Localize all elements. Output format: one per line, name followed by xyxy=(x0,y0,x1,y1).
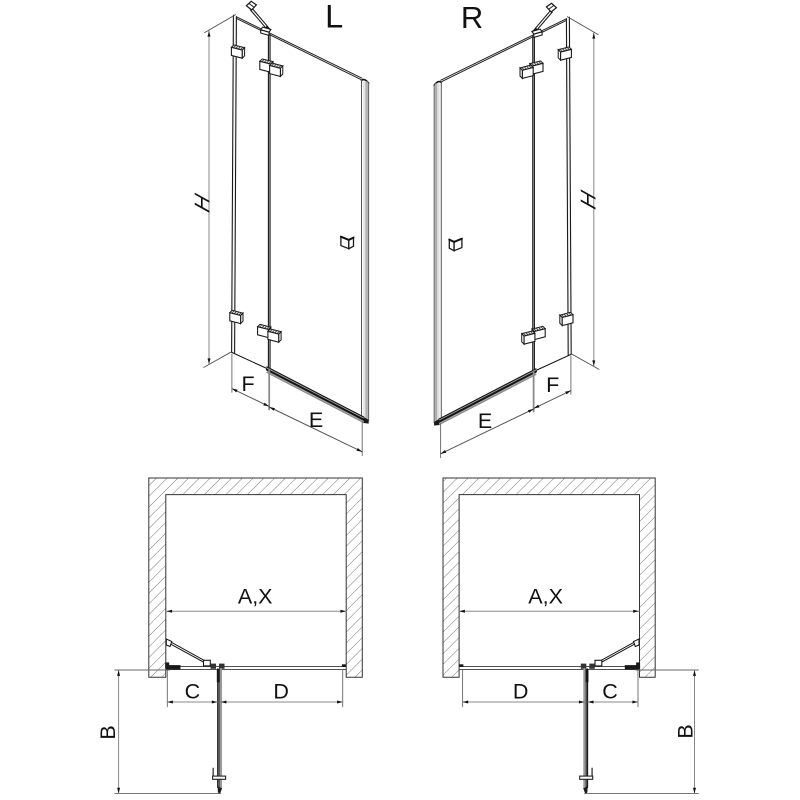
svg-text:E: E xyxy=(478,409,492,433)
svg-text:F: F xyxy=(242,372,255,396)
svg-text:A,X: A,X xyxy=(528,585,563,609)
svg-text:B: B xyxy=(673,724,697,738)
svg-text:C: C xyxy=(602,680,618,704)
svg-text:A,X: A,X xyxy=(238,585,273,609)
svg-text:C: C xyxy=(185,680,201,704)
svg-text:B: B xyxy=(96,725,120,739)
svg-text:F: F xyxy=(546,373,559,397)
svg-text:E: E xyxy=(309,408,323,432)
svg-text:L: L xyxy=(325,0,343,34)
svg-text:R: R xyxy=(461,0,483,35)
svg-text:D: D xyxy=(513,680,529,704)
svg-text:D: D xyxy=(273,680,289,704)
